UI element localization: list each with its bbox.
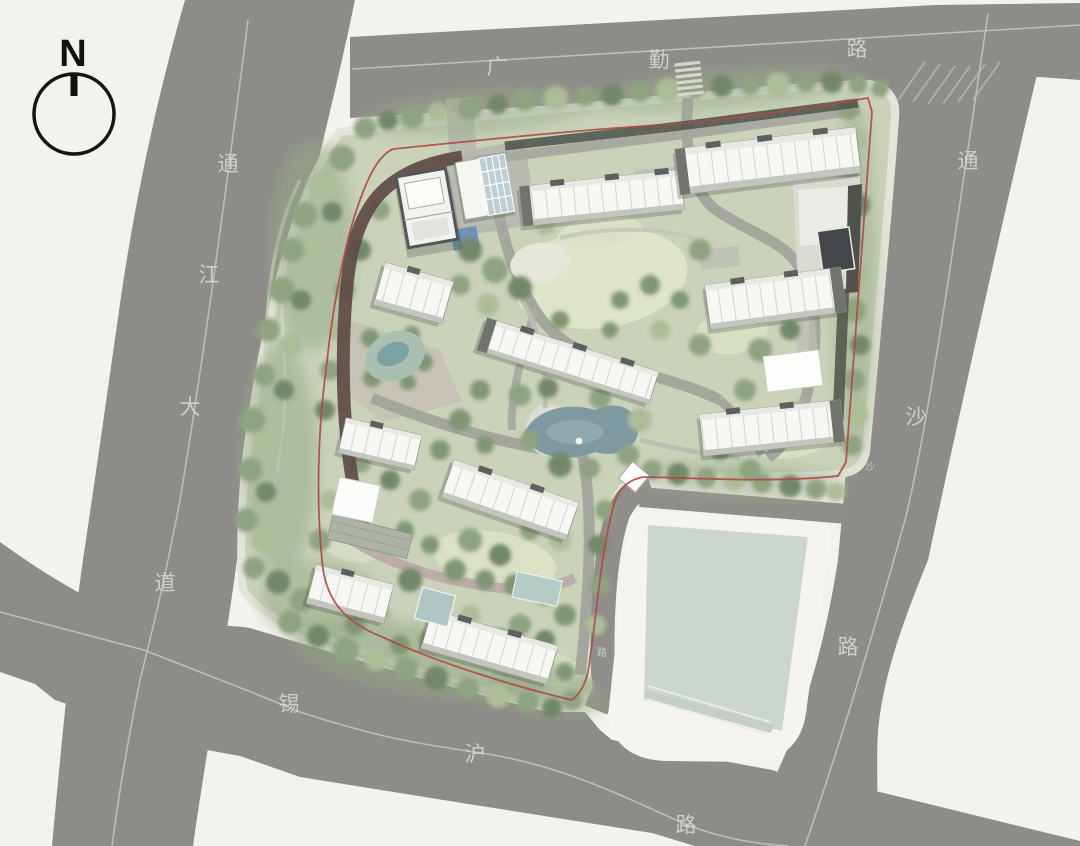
svg-text:江: 江 [199, 264, 220, 287]
svg-text:沙: 沙 [906, 406, 927, 429]
svg-text:道: 道 [155, 572, 176, 595]
svg-text:路: 路 [597, 646, 607, 659]
svg-text:通: 通 [218, 153, 239, 176]
svg-text:锡: 锡 [279, 693, 300, 716]
svg-text:大: 大 [180, 396, 201, 419]
svg-text:路: 路 [847, 38, 868, 61]
svg-text:沙: 沙 [865, 461, 875, 473]
svg-text:通: 通 [958, 150, 979, 173]
svg-text:路: 路 [676, 814, 697, 837]
svg-text:广: 广 [487, 56, 508, 79]
svg-text:路: 路 [838, 636, 859, 659]
svg-text:N: N [59, 33, 86, 75]
svg-text:沪: 沪 [465, 743, 486, 766]
svg-text:勤: 勤 [649, 49, 670, 72]
